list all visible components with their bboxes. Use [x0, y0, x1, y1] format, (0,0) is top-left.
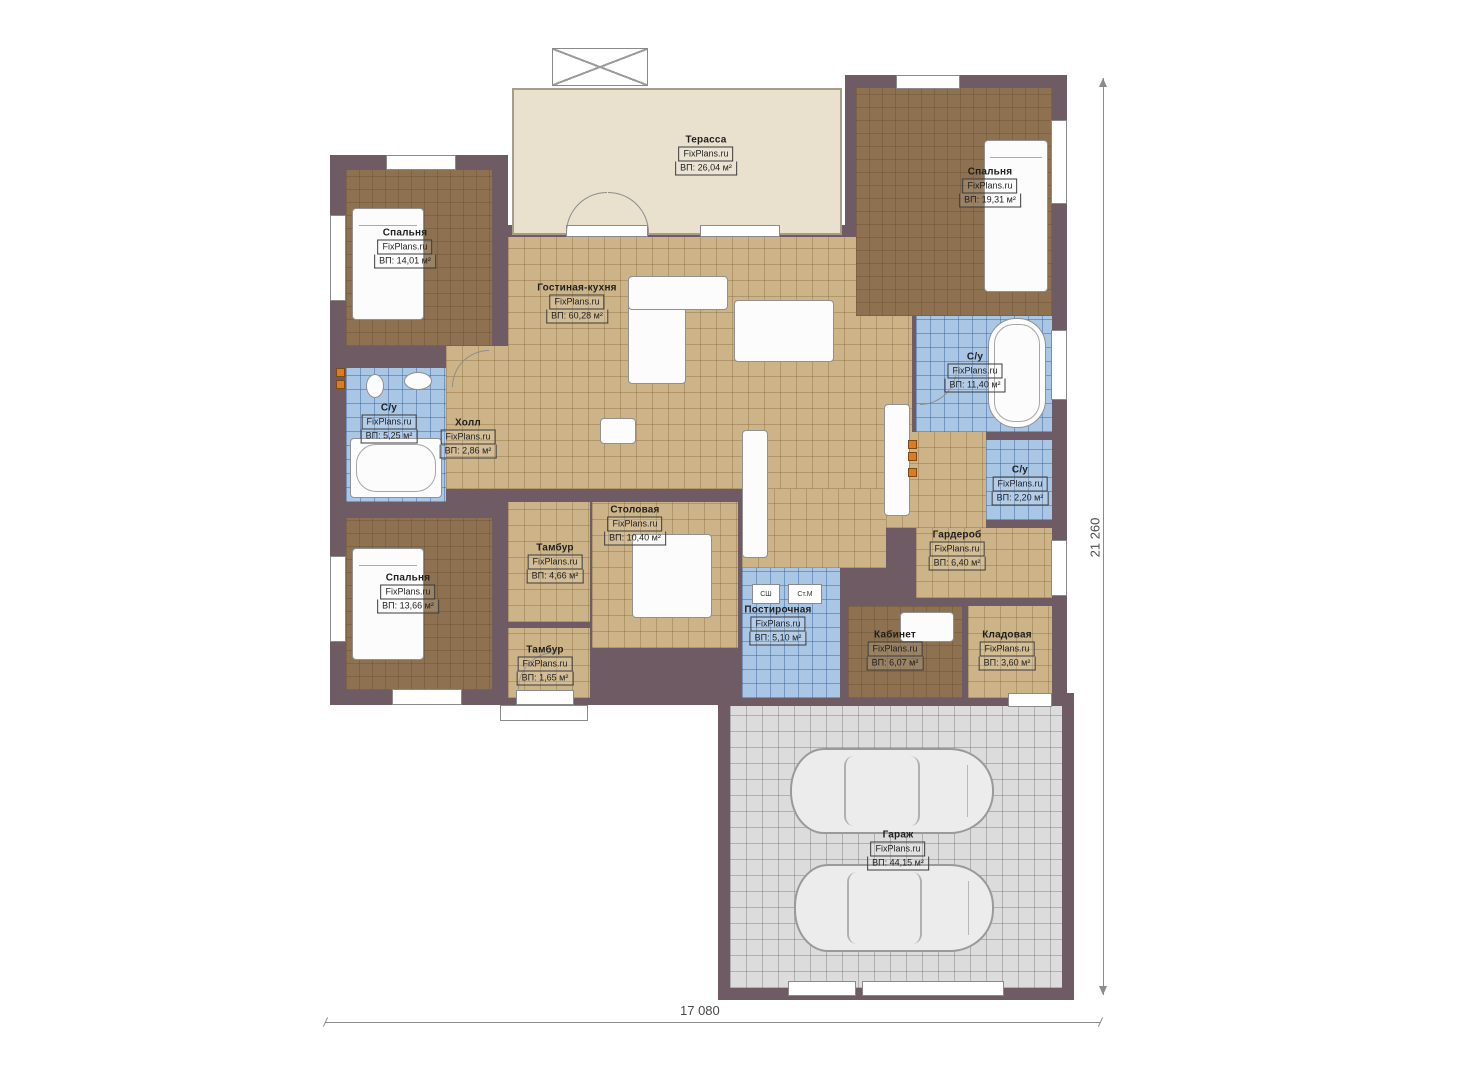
room-area: ВП: 4,66 м² — [527, 570, 584, 584]
room-name: Постирочная — [744, 605, 811, 616]
room-area: ВП: 6,40 м² — [929, 557, 986, 571]
room-area: ВП: 5,10 м² — [750, 632, 807, 646]
kitchen-counter-right — [884, 404, 910, 516]
room-area: ВП: 10,40 м² — [604, 532, 666, 546]
garage-door-1 — [788, 981, 856, 996]
porch-step-entrance — [500, 705, 588, 721]
room-area: ВП: 13,66 м² — [377, 600, 439, 614]
room-label-terrace: Терасса FixPlans.ru ВП: 26,04 м² — [675, 135, 737, 176]
dimension-line-bottom — [325, 1022, 1101, 1023]
room-area: ВП: 60,28 м² — [546, 310, 608, 324]
room-name: С/у — [381, 403, 397, 414]
room-area: ВП: 6,07 м² — [867, 657, 924, 671]
window-living-terrace — [700, 225, 780, 237]
floor-living-kitchen — [508, 237, 912, 489]
room-label-bedroom-bl: Спальня FixPlans.ru ВП: 13,66 м² — [377, 573, 439, 614]
dimension-tick-br — [1098, 1017, 1103, 1026]
room-name: С/у — [967, 352, 983, 363]
brand-tag: FixPlans.ru — [678, 147, 733, 162]
bathtub-left — [350, 438, 442, 498]
toilet-left — [366, 374, 384, 398]
room-area: ВП: 5,25 м² — [361, 430, 418, 444]
room-label-bath-l: С/у FixPlans.ru ВП: 5,25 м² — [361, 403, 418, 444]
brand-tag: FixPlans.ru — [549, 295, 604, 310]
dimension-arrow-top — [1099, 78, 1107, 87]
room-name: С/у — [1012, 465, 1028, 476]
window-bedroom-bl-bottom — [392, 689, 462, 705]
dimension-line-right — [1103, 78, 1104, 995]
room-label-bedroom-tl: Спальня FixPlans.ru ВП: 14,01 м² — [374, 228, 436, 269]
room-name: Гостиная-кухня — [537, 283, 616, 294]
brand-tag: FixPlans.ru — [517, 657, 572, 672]
floor-plan: СШ Ст.М Терасса FixPlans.ru ВП: 26,04 м²… — [0, 0, 1474, 1080]
car-2 — [794, 864, 994, 952]
dimension-arrow-bottom — [1099, 986, 1107, 995]
room-area: ВП: 2,86 м² — [440, 445, 497, 459]
brand-tag: FixPlans.ru — [867, 642, 922, 657]
room-label-tambour-2: Тамбур FixPlans.ru ВП: 1,65 м² — [517, 645, 574, 686]
room-name: Гараж — [883, 830, 914, 841]
room-area: ВП: 14,01 м² — [374, 255, 436, 269]
car-1 — [790, 748, 994, 834]
radiator-mark-right-3 — [908, 468, 917, 477]
brand-tag: FixPlans.ru — [377, 240, 432, 255]
room-area: ВП: 1,65 м² — [517, 672, 574, 686]
radiator-mark-right-2 — [908, 452, 917, 461]
washer-label: Ст.М — [797, 591, 812, 598]
brand-tag: FixPlans.ru — [929, 542, 984, 557]
garage-door-2 — [862, 981, 1004, 996]
brand-tag: FixPlans.ru — [607, 517, 662, 532]
brand-tag: FixPlans.ru — [380, 585, 435, 600]
room-name: Тамбур — [526, 645, 563, 656]
dining-room-table — [632, 534, 712, 618]
room-name: Спальня — [968, 167, 1013, 178]
room-label-tambour-1: Тамбур FixPlans.ru ВП: 4,66 м² — [527, 543, 584, 584]
porch-step-terrace — [552, 48, 648, 86]
brand-tag: FixPlans.ru — [979, 642, 1034, 657]
door-entrance-tambour — [516, 690, 574, 705]
room-name: Спальня — [383, 228, 428, 239]
room-area: ВП: 44,15 м² — [867, 857, 929, 871]
brand-tag: FixPlans.ru — [750, 617, 805, 632]
coffee-table — [600, 418, 636, 444]
room-label-storage: Кладовая FixPlans.ru ВП: 3,60 м² — [979, 630, 1036, 671]
dimension-width: 17 080 — [680, 1003, 720, 1018]
room-area: ВП: 11,40 м² — [944, 379, 1005, 393]
brand-tag: FixPlans.ru — [440, 430, 495, 445]
room-name: Терасса — [685, 135, 726, 146]
window-bedroom-bl-left — [330, 556, 346, 642]
room-label-cabinet: Кабинет FixPlans.ru ВП: 6,07 м² — [867, 630, 924, 671]
sofa-living-return — [628, 276, 728, 310]
room-name: Кладовая — [982, 630, 1032, 641]
room-name: Гардероб — [933, 530, 982, 541]
brand-tag: FixPlans.ru — [992, 477, 1047, 492]
window-bedroom-tr-right — [1051, 120, 1067, 204]
dining-table-living — [734, 300, 834, 362]
room-label-wardrobe: Гардероб FixPlans.ru ВП: 6,40 м² — [929, 530, 986, 571]
room-name: Спальня — [386, 573, 431, 584]
window-bedroom-tl-top — [386, 155, 456, 170]
room-label-wc-r: С/у FixPlans.ru ВП: 2,20 м² — [992, 465, 1049, 506]
room-name: Холл — [455, 418, 481, 429]
window-bath-r-right — [1051, 330, 1067, 400]
brand-tag: FixPlans.ru — [361, 415, 416, 430]
room-label-garage: Гараж FixPlans.ru ВП: 44,15 м² — [867, 830, 929, 871]
room-name: Тамбур — [536, 543, 573, 554]
radiator-mark-left-2 — [336, 380, 345, 389]
bed-bedroom-tr — [984, 140, 1048, 292]
room-name: Столовая — [610, 505, 659, 516]
brand-tag: FixPlans.ru — [962, 179, 1017, 194]
room-area: ВП: 2,20 м² — [992, 492, 1049, 506]
room-label-laundry: Постирочная FixPlans.ru ВП: 5,10 м² — [744, 605, 811, 646]
room-label-dining: Столовая FixPlans.ru ВП: 10,40 м² — [604, 505, 666, 546]
washer-tag: Ст.М — [788, 584, 822, 604]
window-bedroom-tl-left — [330, 215, 346, 301]
radiator-mark-left-1 — [336, 368, 345, 377]
room-label-hall: Холл FixPlans.ru ВП: 2,86 м² — [440, 418, 497, 459]
sink-left — [404, 372, 432, 390]
dryer-tag: СШ — [752, 584, 780, 604]
room-label-living: Гостиная-кухня FixPlans.ru ВП: 60,28 м² — [537, 283, 616, 324]
radiator-mark-right-1 — [908, 440, 917, 449]
room-area: ВП: 3,60 м² — [979, 657, 1036, 671]
kitchen-counter — [742, 430, 768, 558]
dryer-label: СШ — [760, 591, 771, 598]
room-label-bath-r: С/у FixPlans.ru ВП: 11,40 м² — [944, 352, 1005, 393]
brand-tag: FixPlans.ru — [947, 364, 1002, 379]
brand-tag: FixPlans.ru — [870, 842, 925, 857]
room-label-bedroom-tr: Спальня FixPlans.ru ВП: 19,31 м² — [959, 167, 1021, 208]
brand-tag: FixPlans.ru — [527, 555, 582, 570]
window-bedroom-tr-top — [896, 75, 960, 89]
window-wardrobe-right — [1051, 540, 1067, 596]
room-name: Кабинет — [874, 630, 916, 641]
room-area: ВП: 26,04 м² — [675, 162, 737, 176]
dimension-height: 21 260 — [1087, 518, 1102, 558]
garage-side-opening — [1008, 693, 1052, 707]
room-area: ВП: 19,31 м² — [959, 194, 1021, 208]
